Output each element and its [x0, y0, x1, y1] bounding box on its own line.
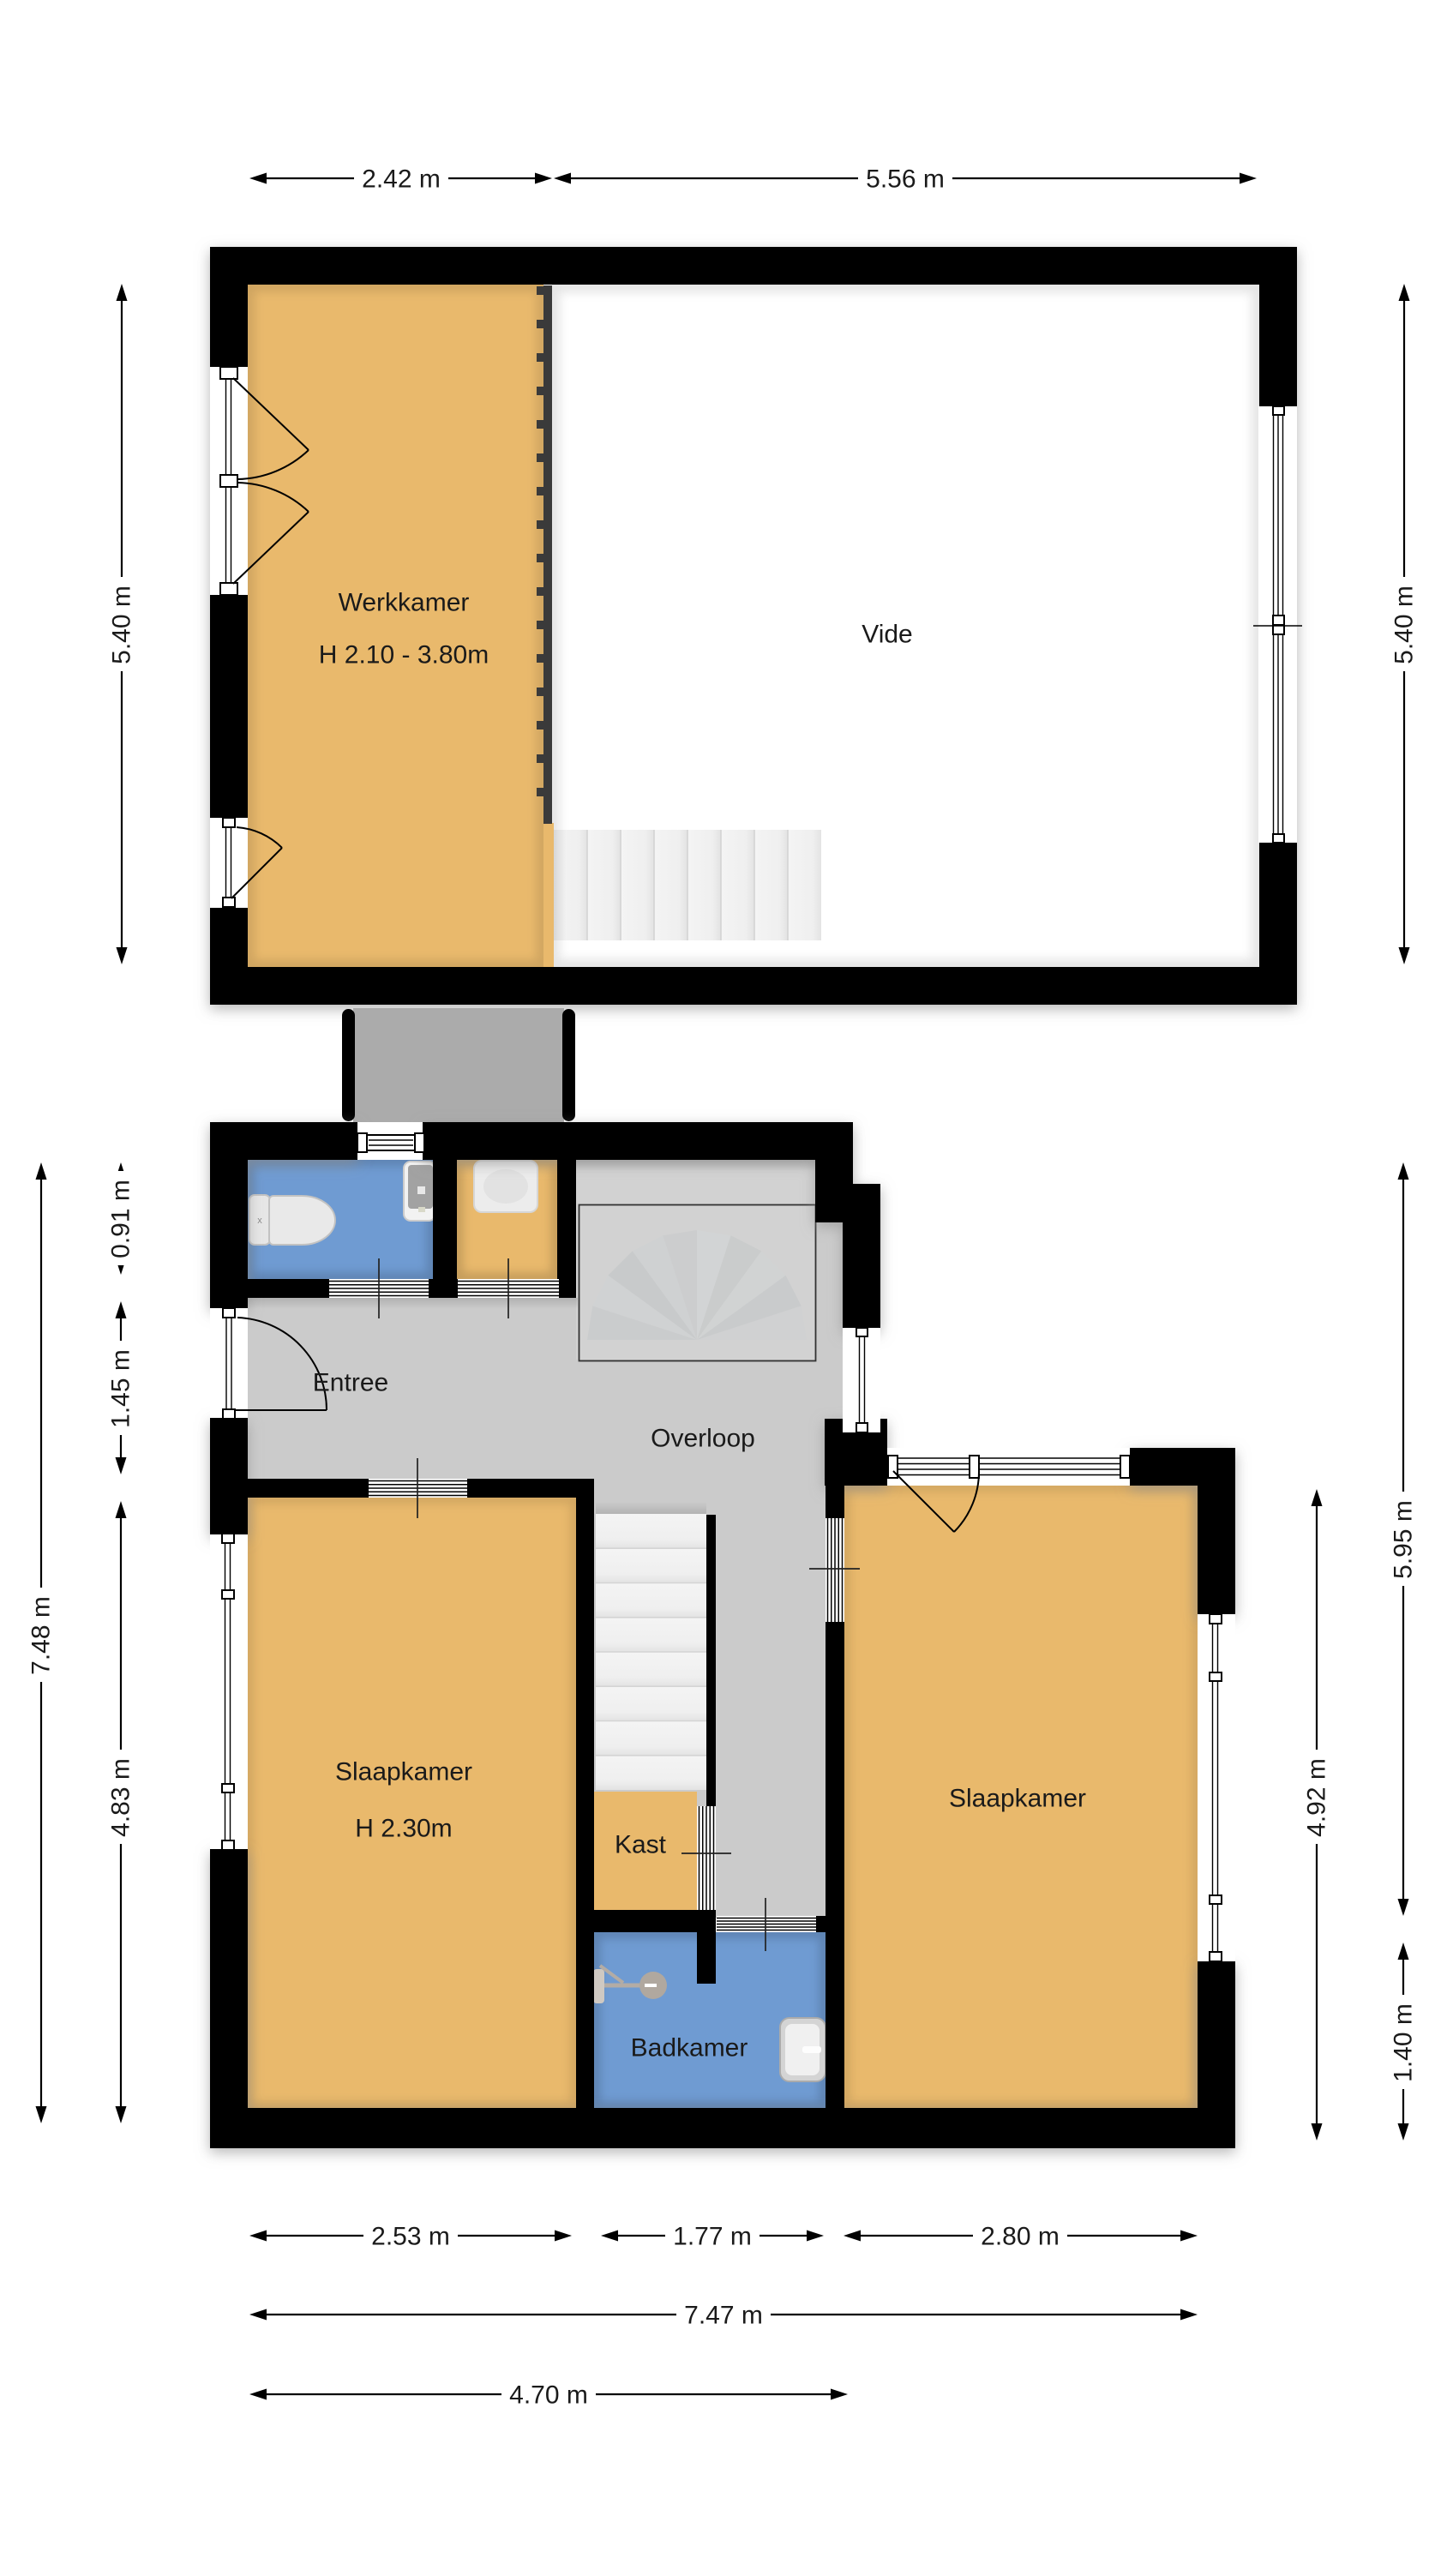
svg-text:7.48 m: 7.48 m [27, 1596, 56, 1675]
svg-text:Werkkamer: Werkkamer [339, 589, 470, 617]
svg-text:4.83 m: 4.83 m [107, 1758, 135, 1837]
svg-text:Vide: Vide [862, 621, 913, 649]
svg-text:2.53 m: 2.53 m [371, 2223, 450, 2251]
svg-text:Badkamer: Badkamer [631, 2034, 748, 2063]
svg-text:5.40 m: 5.40 m [108, 585, 136, 664]
svg-text:Overloop: Overloop [651, 1425, 755, 1453]
svg-text:4.70 m: 4.70 m [509, 2381, 588, 2410]
svg-text:5.56 m: 5.56 m [866, 165, 945, 194]
svg-text:H 2.30m: H 2.30m [355, 1815, 452, 1843]
svg-text:2.42 m: 2.42 m [362, 165, 441, 194]
svg-text:2.80 m: 2.80 m [981, 2223, 1060, 2251]
svg-text:5.95 m: 5.95 m [1390, 1500, 1418, 1579]
svg-text:H 2.10 - 3.80m: H 2.10 - 3.80m [319, 641, 489, 670]
svg-text:5.40 m: 5.40 m [1390, 585, 1419, 664]
svg-text:Slaapkamer: Slaapkamer [335, 1758, 472, 1786]
svg-text:Slaapkamer: Slaapkamer [949, 1785, 1086, 1813]
svg-text:0.91 m: 0.91 m [107, 1180, 135, 1258]
svg-text:1.45 m: 1.45 m [107, 1349, 135, 1428]
svg-text:4.92 m: 4.92 m [1303, 1758, 1331, 1837]
svg-text:1.40 m: 1.40 m [1390, 2003, 1418, 2082]
svg-text:Kast: Kast [615, 1831, 667, 1859]
svg-text:1.77 m: 1.77 m [673, 2223, 752, 2251]
svg-text:7.47 m: 7.47 m [684, 2302, 763, 2330]
svg-text:x: x [257, 1216, 262, 1226]
svg-text:Entree: Entree [313, 1369, 388, 1397]
